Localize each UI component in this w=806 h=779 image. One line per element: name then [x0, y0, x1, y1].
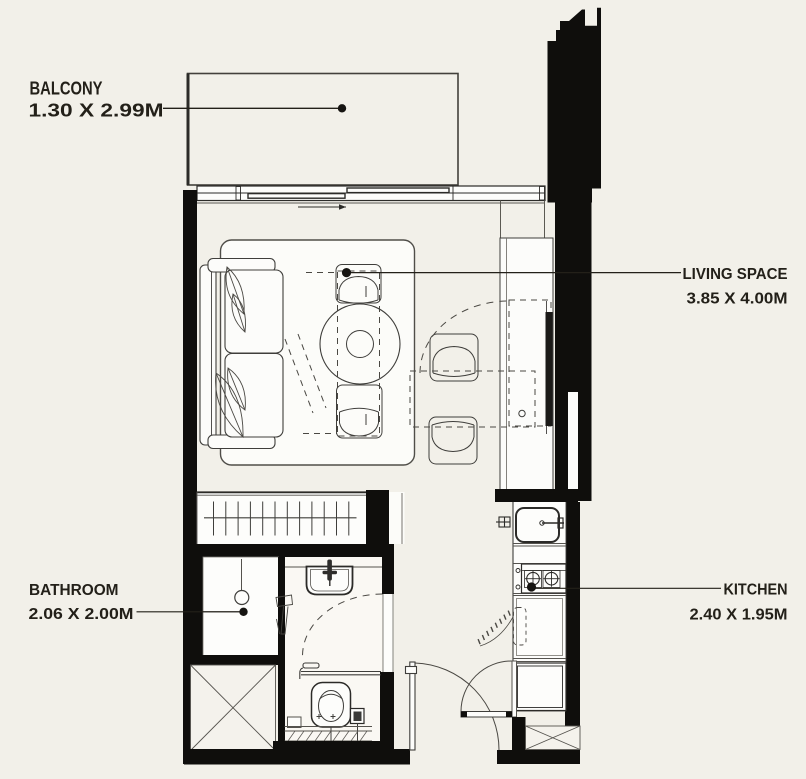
svg-text:BALCONY: BALCONY	[30, 79, 103, 99]
svg-text:BATHROOM: BATHROOM	[29, 582, 119, 599]
svg-text:1.30 X 2.99M: 1.30 X 2.99M	[29, 101, 164, 121]
svg-text:2.40 X 1.95M: 2.40 X 1.95M	[690, 607, 788, 624]
svg-text:LIVING SPACE: LIVING SPACE	[683, 266, 788, 283]
svg-text:KITCHEN: KITCHEN	[724, 582, 788, 599]
svg-text:2.06 X 2.00M: 2.06 X 2.00M	[29, 606, 134, 623]
svg-text:3.85 X 4.00M: 3.85 X 4.00M	[687, 291, 788, 308]
